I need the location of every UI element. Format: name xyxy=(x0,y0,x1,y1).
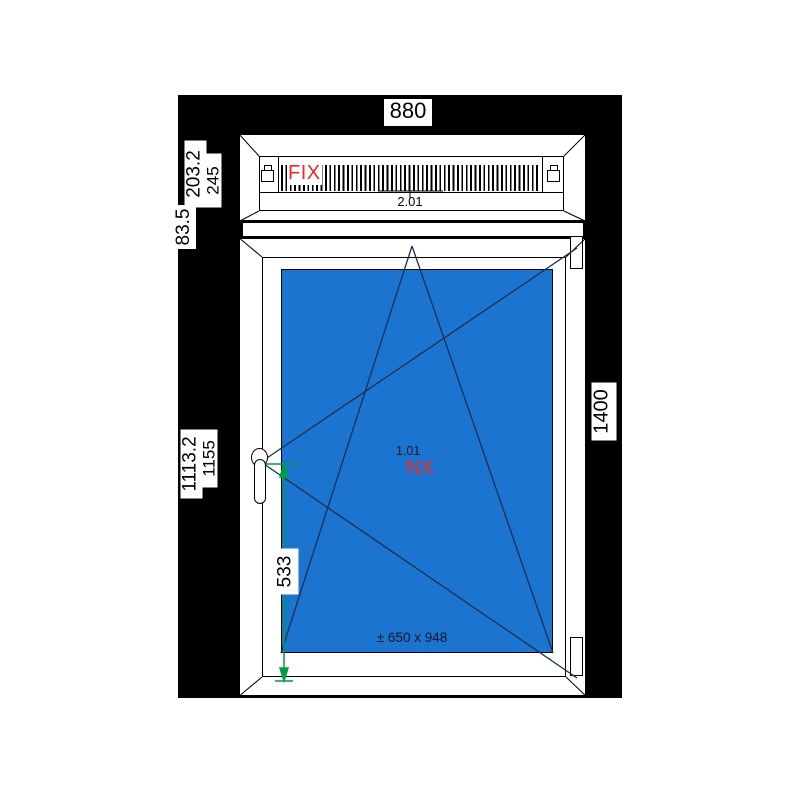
dimension-main-sash-height: 1155 xyxy=(201,430,218,488)
dimension-arrow-down-icon xyxy=(280,668,288,681)
sash-size-note: ± 650 x 948 xyxy=(372,630,452,645)
dimension-total-width: 880 xyxy=(384,99,432,126)
dimension-top-frame-height: 245 xyxy=(205,154,222,208)
dimension-main-height: 1400 xyxy=(592,383,617,441)
dimension-handle-height: 533 xyxy=(276,549,299,595)
window-handle-lever[interactable] xyxy=(254,459,266,504)
window-drawing-canvas: FIX 2.01 xyxy=(0,0,800,800)
dimension-top-offset: 83.5 xyxy=(174,205,196,249)
dimension-arrow-up-icon xyxy=(280,464,288,477)
main-position-number: 1.01 xyxy=(396,444,420,458)
profile-system-label: NX xyxy=(406,457,434,480)
